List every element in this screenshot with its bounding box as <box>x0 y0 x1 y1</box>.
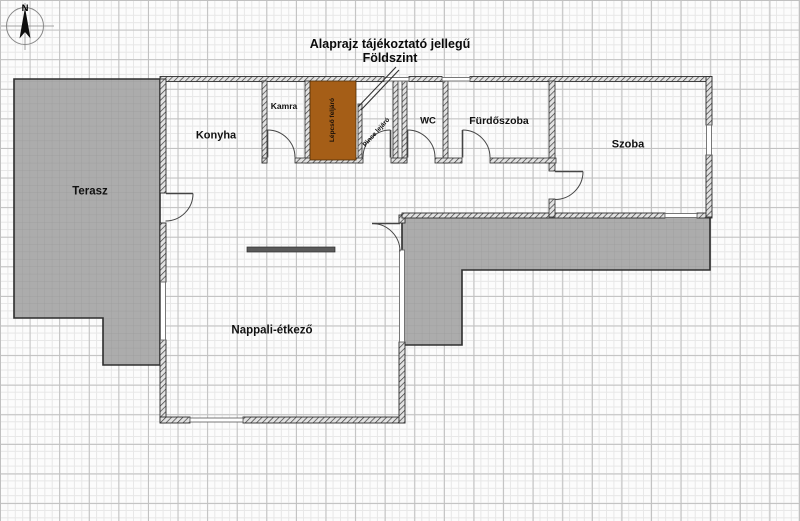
room-label-furdoszoba: Fürdőszoba <box>469 116 529 127</box>
wall-strip-5 <box>490 158 556 163</box>
room-label-terasz: Terasz <box>72 186 108 198</box>
floorplan-canvas: N Alaprajz tájékoztató jellegű Földszint… <box>0 0 800 521</box>
wall-kamra-right <box>305 81 310 163</box>
room-label-szoba: Szoba <box>612 140 644 151</box>
wall-pince-right <box>393 81 398 163</box>
north-label: N <box>22 3 29 14</box>
door-kamra <box>268 130 296 158</box>
wall-strip-4 <box>435 158 462 163</box>
window-east-glass <box>400 250 405 342</box>
wall-szoba-left-upper <box>549 81 555 171</box>
door-terrace <box>166 194 194 222</box>
wall-west-3 <box>160 340 166 423</box>
room-label-wc: WC <box>420 116 436 126</box>
wall-strip-3 <box>391 158 407 163</box>
terrace-area <box>14 79 160 365</box>
wall-south-2 <box>243 417 405 423</box>
window-szoba-south <box>665 214 697 218</box>
wall-south-1 <box>160 417 190 423</box>
wall-strip-1 <box>262 158 267 163</box>
wall-west-2 <box>160 223 166 282</box>
door-wc <box>408 130 436 158</box>
wall-kamra-left <box>262 81 267 163</box>
wall-wc-left <box>402 81 407 163</box>
kitchen-counter <box>247 247 335 252</box>
room-label-konyha: Konyha <box>196 131 236 142</box>
floorplan-drawing: N <box>0 0 800 521</box>
door-szoba <box>555 172 583 200</box>
window-south <box>190 418 243 422</box>
wall-szoba-east-2 <box>706 155 712 217</box>
wall-wc-right <box>443 81 448 163</box>
wall-szoba-left-lower <box>549 199 555 217</box>
window-top-1 <box>384 78 409 82</box>
door-furdoszoba <box>463 130 491 158</box>
compass: N <box>1 3 54 50</box>
room-label-nappali: Nappali-étkező <box>231 325 312 337</box>
wall-west-1 <box>160 79 166 193</box>
window-top-2 <box>442 78 470 82</box>
wall-corridor-south <box>402 213 665 218</box>
plan-title-line2: Földszint <box>310 51 470 65</box>
door-entry <box>372 224 400 252</box>
wall-east-lower <box>399 342 405 423</box>
window-west <box>161 282 166 340</box>
room-label-kamra: Kamra <box>271 102 297 111</box>
window-szoba-east <box>707 125 712 155</box>
wall-szoba-east-1 <box>706 77 712 126</box>
plan-title-line1: Alaprajz tájékoztató jellegű <box>310 37 470 51</box>
wall-pince-left <box>358 104 362 163</box>
wall-top-2 <box>409 77 442 82</box>
interior-walls <box>262 81 556 217</box>
plan-title: Alaprajz tájékoztató jellegű Földszint <box>310 37 470 65</box>
wall-top-3 <box>470 77 712 82</box>
room-label-lepcso-feljaro: Lépcső feljáró <box>330 98 337 142</box>
walkway-area <box>402 215 710 345</box>
